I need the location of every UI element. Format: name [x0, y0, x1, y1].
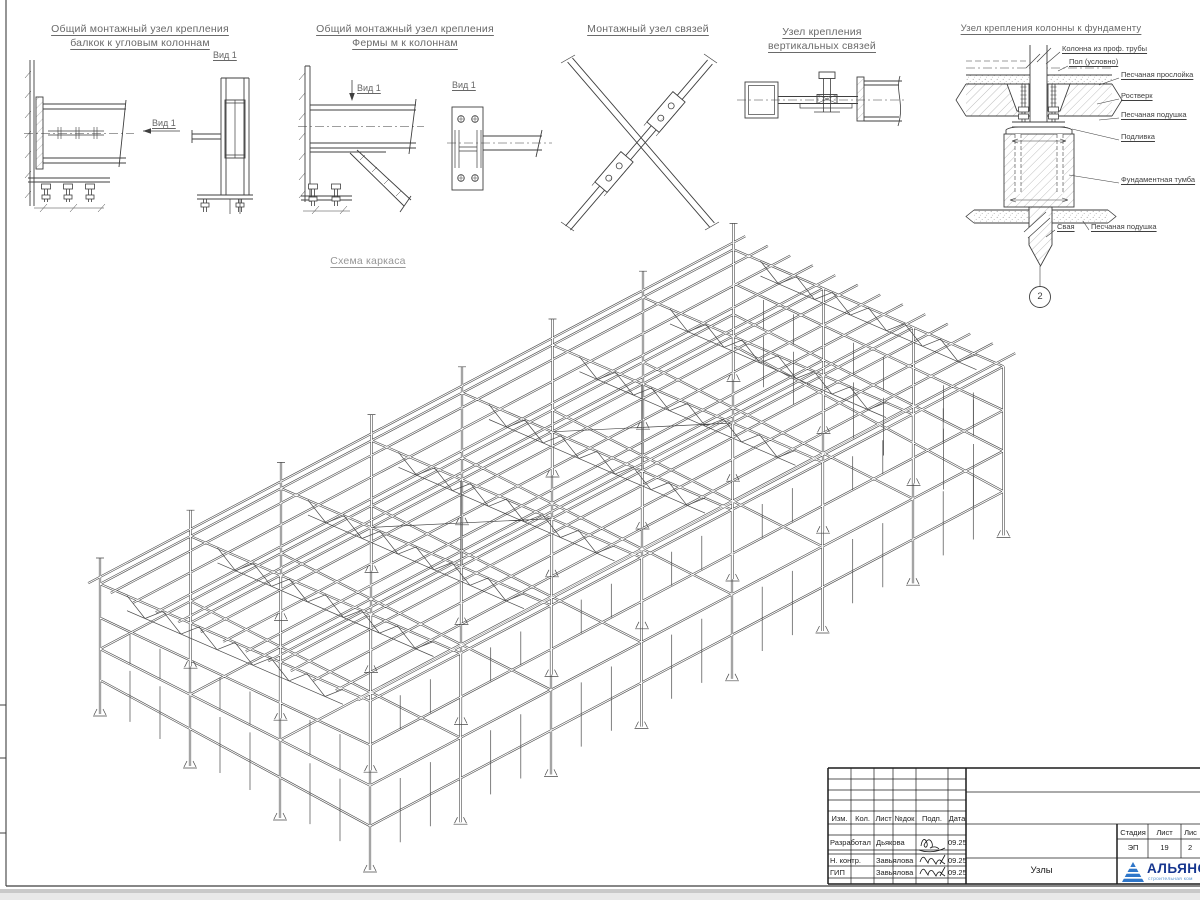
tb-sheets-header: Лис — [1181, 828, 1200, 837]
label-sand-layer: Песчаная прослойка — [1121, 70, 1193, 79]
detail1-title-line1: Общий монтажный узел крепления — [35, 23, 245, 35]
detail2-title-line1: Общий монтажный узел крепления — [300, 23, 510, 35]
label-pile: Свая — [1057, 222, 1075, 231]
view1-face-label-d2: Вид 1 — [452, 80, 476, 90]
tb-col-izm: Изм. — [828, 814, 851, 823]
label-floor: Пол (условно) — [1069, 57, 1118, 66]
tb-col-podp: Подп. — [916, 814, 948, 823]
label-sand-pad2: Песчаная подушка — [1091, 222, 1157, 231]
node-marker-2: 2 — [1033, 291, 1047, 302]
signatures — [919, 839, 945, 876]
detail4-title-line2: вертикальных связей — [752, 40, 892, 52]
signature — [920, 867, 945, 876]
frame-scheme-title: Схема каркаса — [318, 255, 418, 267]
drawing-sheet: Общий монтажный узел крепления балкок к … — [0, 0, 1200, 900]
tb-date-ncontrol: 09.25 — [948, 856, 967, 865]
tb-stage-value: ЭП — [1118, 843, 1148, 852]
logo-text: АЛЬЯНС — [1147, 861, 1200, 876]
tb-name-gip: Завьялова — [876, 868, 913, 877]
detail-bracing-cross — [561, 54, 719, 231]
label-grout: Подливка — [1121, 132, 1155, 141]
detail-beam-to-corner-column — [24, 60, 253, 214]
logo-triangle-icon — [1120, 859, 1146, 884]
label-grillage: Ростверк — [1121, 91, 1153, 100]
view1-arrow-label: Вид 1 — [152, 118, 176, 128]
label-pedestal: Фундаментная тумба — [1121, 175, 1195, 184]
company-logo: АЛЬЯНС строительная ком — [1118, 858, 1200, 884]
detail-vertical-bracing — [737, 72, 907, 126]
tb-col-list: Лист — [874, 814, 893, 823]
detail-column-to-foundation — [956, 45, 1122, 308]
tb-stage-header: Стадия — [1118, 828, 1148, 837]
detail-truss-to-column — [298, 66, 552, 214]
tb-sheets-value: 2 — [1188, 843, 1200, 852]
view1-side-label: Вид 1 — [213, 50, 237, 60]
detail3-title: Монтажный узел связей — [558, 23, 738, 35]
tb-sheet-header: Лист — [1148, 828, 1181, 837]
tb-col-kol: Кол. — [851, 814, 874, 823]
tb-doc-title: Узлы — [966, 865, 1117, 876]
tb-role-gip: ГИП — [830, 868, 845, 877]
frame-scheme-drawing — [88, 223, 1015, 872]
tb-name-developed: Дьякова — [876, 838, 905, 847]
detail2-title-line2: Фермы м к колоннам — [300, 37, 510, 49]
background-below-sheet — [0, 893, 1200, 900]
tb-role-developed: Разработал — [830, 838, 871, 847]
tb-date-gip: 09.25 — [948, 868, 967, 877]
detail4-title-line1: Узел крепления — [752, 26, 892, 38]
drawing-canvas — [0, 0, 1200, 900]
tb-name-ncontrol: Завьялова — [876, 856, 913, 865]
detail1-title-line2: балкок к угловым колоннам — [35, 37, 245, 49]
label-sand-pad: Песчаная подушка — [1121, 110, 1187, 119]
signature — [920, 855, 945, 864]
tb-date-developed: 09.25 — [948, 838, 967, 847]
tb-sheet-value: 19 — [1148, 843, 1181, 852]
view1-arrow-label-d2: Вид 1 — [357, 83, 381, 93]
label-column-pipe: Колонна из проф. трубы — [1062, 44, 1147, 53]
tb-role-ncontrol: Н. контр. — [830, 856, 861, 865]
logo-subtext: строительная ком — [1148, 877, 1193, 882]
tb-col-data: Дата — [948, 814, 966, 823]
tb-col-ndok: №док — [893, 814, 916, 823]
detail5-title: Узел крепления колонны к фундаменту — [945, 23, 1157, 34]
